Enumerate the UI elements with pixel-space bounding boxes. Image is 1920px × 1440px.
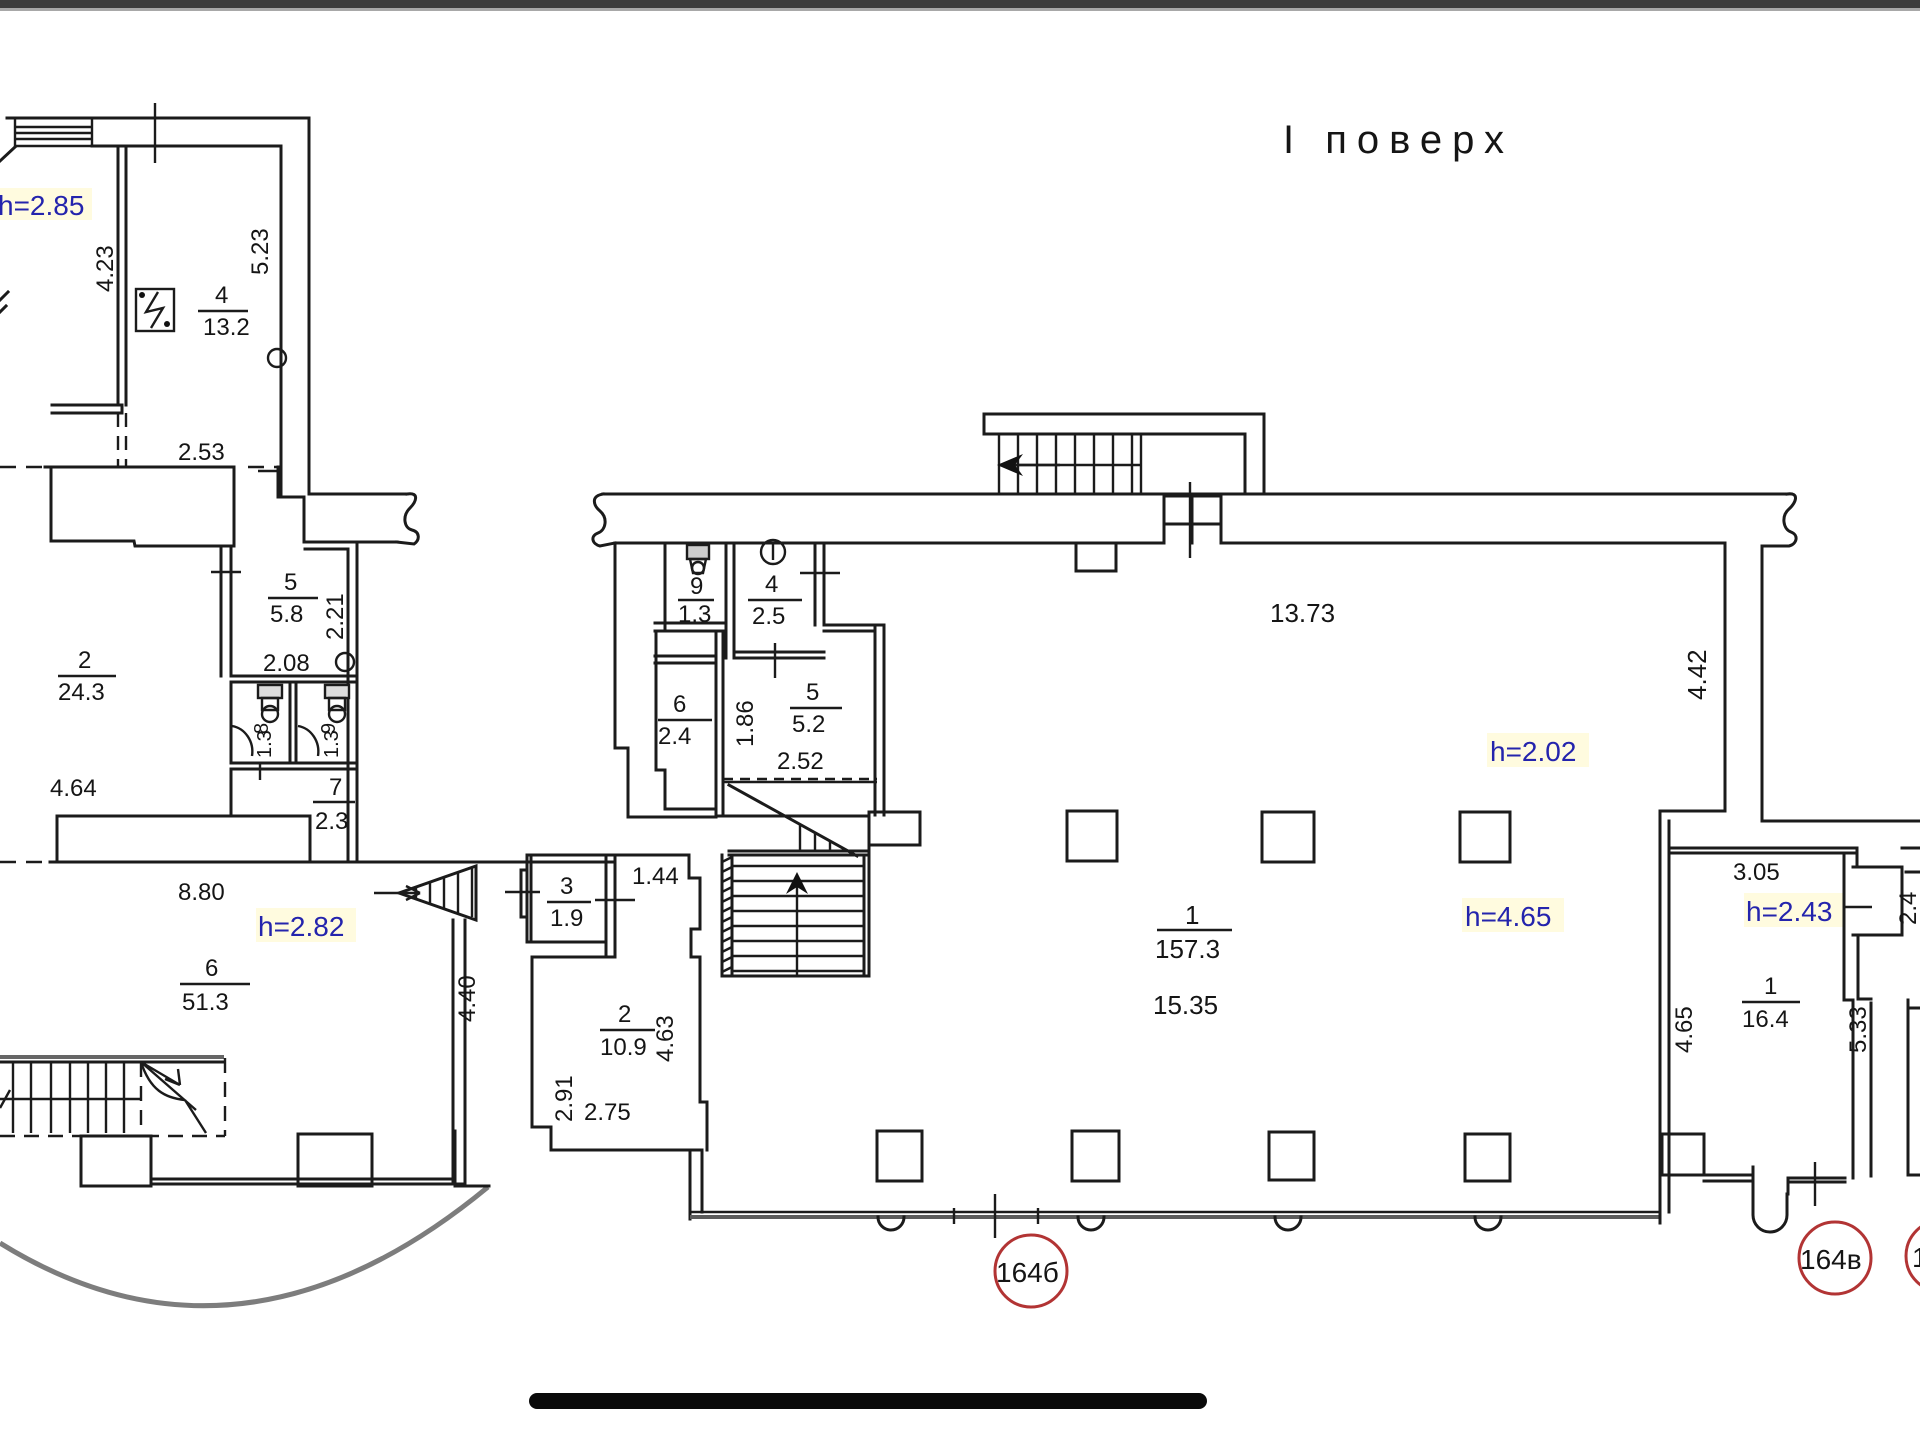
svg-text:1: 1 [1764, 973, 1777, 1000]
svg-text:3: 3 [560, 873, 573, 900]
svg-text:2: 2 [618, 1001, 631, 1028]
svg-text:6: 6 [205, 955, 218, 982]
svg-text:4: 4 [765, 571, 778, 598]
svg-text:13.2: 13.2 [203, 314, 250, 341]
svg-text:8.80: 8.80 [178, 879, 225, 906]
svg-text:h=2.02: h=2.02 [1490, 736, 1576, 767]
svg-text:24.3: 24.3 [58, 679, 105, 706]
svg-text:2.91: 2.91 [551, 1075, 578, 1122]
svg-text:6: 6 [673, 691, 686, 718]
svg-text:5.23: 5.23 [247, 228, 274, 275]
svg-text:h=2.85: h=2.85 [0, 190, 84, 221]
svg-text:2.4: 2.4 [658, 723, 691, 750]
svg-text:4.42: 4.42 [1682, 649, 1712, 700]
svg-text:1.3: 1.3 [321, 730, 343, 758]
svg-text:5: 5 [284, 569, 297, 596]
svg-text:2.21: 2.21 [322, 593, 349, 640]
svg-text:15.35: 15.35 [1153, 990, 1218, 1020]
svg-text:4.23: 4.23 [92, 245, 119, 292]
svg-text:5: 5 [806, 679, 819, 706]
svg-text:164в: 164в [1800, 1244, 1862, 1275]
svg-text:164б: 164б [996, 1257, 1059, 1288]
svg-text:2: 2 [78, 647, 91, 674]
svg-text:2.08: 2.08 [263, 650, 310, 677]
svg-text:2.3: 2.3 [315, 808, 348, 835]
svg-text:1: 1 [1185, 900, 1199, 930]
svg-text:1: 1 [1912, 1242, 1920, 1273]
svg-text:4.65: 4.65 [1671, 1006, 1698, 1053]
svg-text:1.9: 1.9 [550, 905, 583, 932]
svg-text:13.73: 13.73 [1270, 598, 1335, 628]
svg-text:І поверх: І поверх [1283, 118, 1514, 162]
svg-text:1.86: 1.86 [732, 700, 759, 747]
svg-text:4.63: 4.63 [652, 1015, 679, 1062]
svg-text:3.05: 3.05 [1733, 859, 1780, 886]
svg-text:51.3: 51.3 [182, 989, 229, 1016]
svg-text:9: 9 [690, 573, 703, 600]
svg-text:4: 4 [215, 282, 228, 309]
svg-text:2.75: 2.75 [584, 1099, 631, 1126]
svg-text:4.40: 4.40 [454, 975, 481, 1022]
svg-text:16.4: 16.4 [1742, 1006, 1789, 1033]
svg-text:7: 7 [329, 774, 342, 801]
svg-text:1.3: 1.3 [254, 730, 276, 758]
svg-text:h=4.65: h=4.65 [1465, 901, 1551, 932]
svg-text:157.3: 157.3 [1155, 934, 1220, 964]
svg-text:5.33: 5.33 [1845, 1006, 1872, 1053]
svg-text:2.52: 2.52 [777, 748, 824, 775]
svg-text:4.64: 4.64 [50, 775, 97, 802]
svg-text:5.2: 5.2 [792, 711, 825, 738]
svg-text:5.8: 5.8 [270, 601, 303, 628]
svg-text:1.3: 1.3 [678, 601, 711, 628]
svg-text:10.9: 10.9 [600, 1034, 647, 1061]
svg-text:1.44: 1.44 [632, 863, 679, 890]
svg-text:2.53: 2.53 [178, 439, 225, 466]
svg-text:h=2.82: h=2.82 [258, 911, 344, 942]
svg-text:h=2.43: h=2.43 [1746, 896, 1832, 927]
svg-text:2.4: 2.4 [1895, 892, 1920, 925]
svg-text:2.5: 2.5 [752, 603, 785, 630]
